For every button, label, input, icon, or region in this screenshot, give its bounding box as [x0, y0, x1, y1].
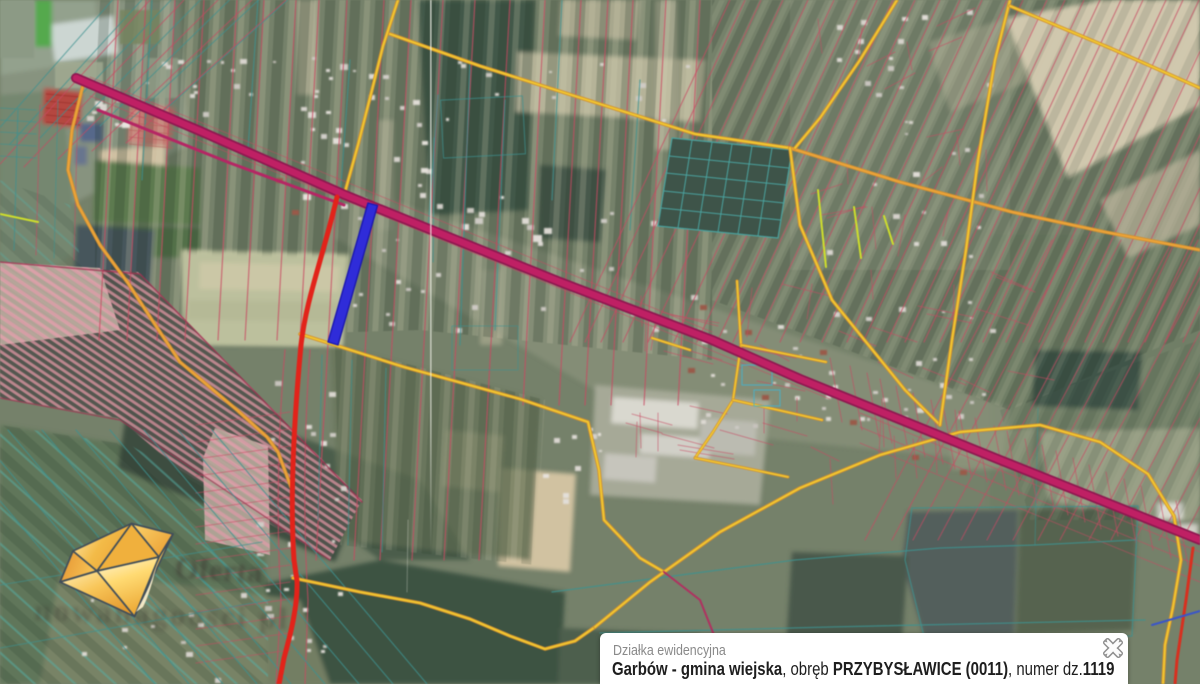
- svg-text:Oferta: Oferta: [174, 550, 264, 590]
